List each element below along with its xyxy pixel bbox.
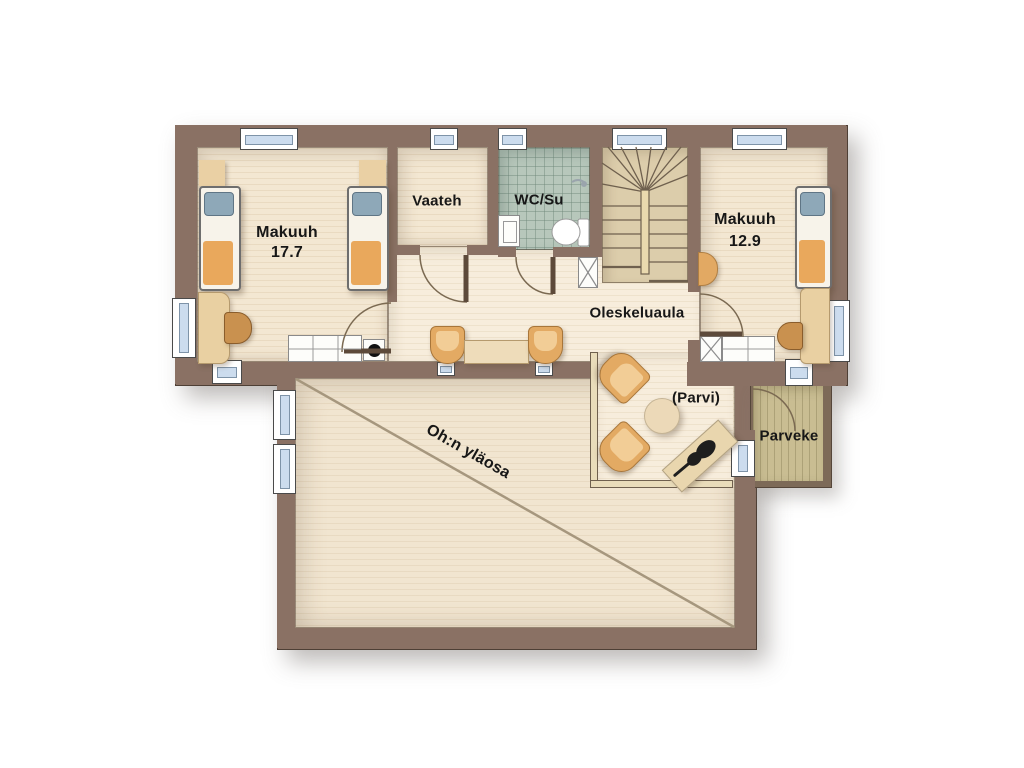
wc-label: WC/Su — [514, 192, 563, 209]
bedroom2-label: Makuuh — [714, 211, 776, 229]
balcony-label: Parveke — [760, 428, 819, 445]
stair-handrail — [641, 190, 649, 274]
hall-label: Oleskeluaula — [590, 305, 685, 322]
stair-fan — [602, 147, 688, 192]
floor-plan-canvas: Makuuh 17.7 Vaateh WC/Su Makuuh 12.9 Ole… — [0, 0, 1024, 768]
void-diagonal-line — [296, 379, 734, 627]
plan-linework — [0, 0, 1024, 768]
loft-label: (Parvi) — [672, 390, 720, 407]
bedroom1-area: 17.7 — [271, 244, 303, 262]
door-leaves — [344, 255, 742, 351]
bedroom1-label: Makuuh — [256, 224, 318, 242]
bedroom2-area: 12.9 — [729, 233, 761, 251]
guitar — [669, 436, 719, 482]
closet-label: Vaateh — [412, 193, 462, 210]
shower-fitting — [572, 180, 586, 186]
toilet — [552, 219, 589, 246]
door-arcs — [342, 255, 795, 431]
